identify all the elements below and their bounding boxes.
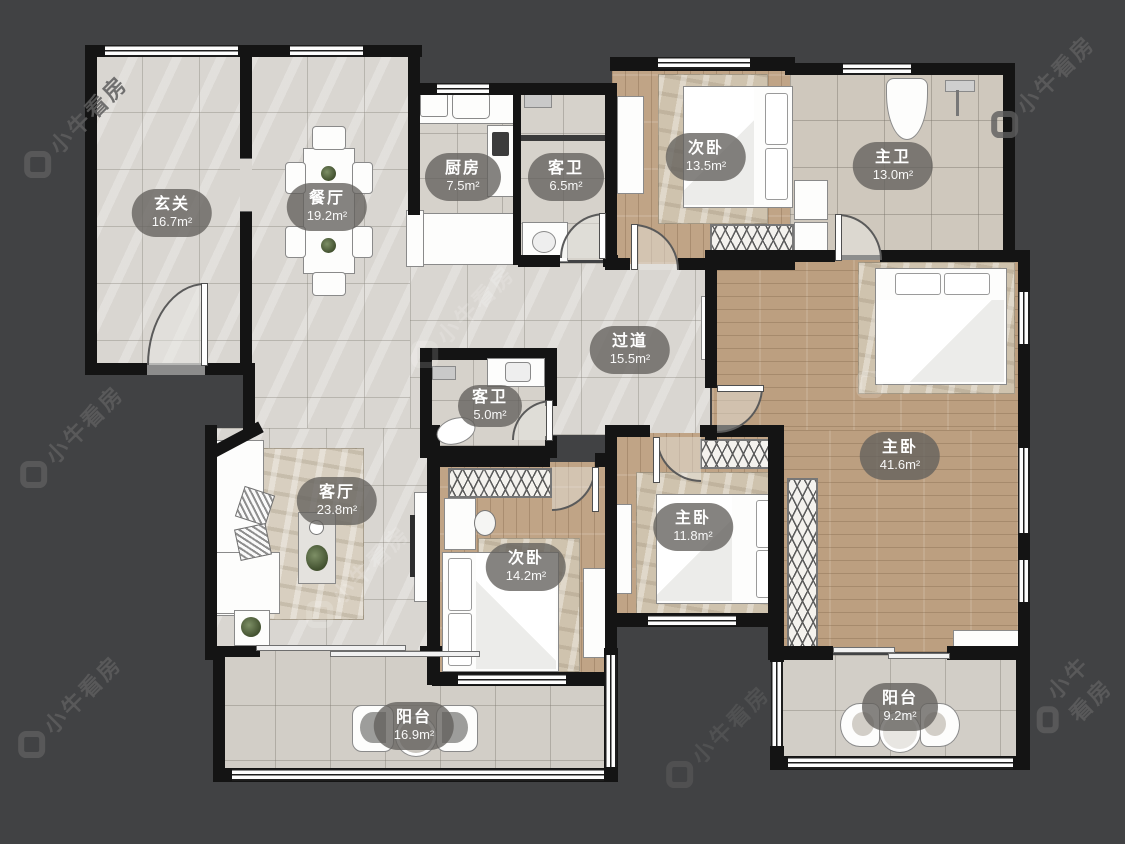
bedroom-upper-window-seat bbox=[617, 96, 644, 194]
watermark: 小牛看房 bbox=[658, 677, 776, 795]
wall bbox=[240, 210, 252, 375]
window bbox=[437, 83, 489, 95]
room-label-balcony-left: 阳台16.9m² bbox=[374, 702, 454, 750]
entry-dining-opening bbox=[240, 158, 252, 212]
window bbox=[458, 674, 566, 685]
wall bbox=[678, 258, 795, 270]
living-tv bbox=[410, 515, 415, 577]
entry-door-leaf bbox=[201, 283, 208, 366]
sliding-door-master-balcony-rail-1 bbox=[833, 647, 895, 653]
living-sofa-chaise bbox=[216, 552, 280, 614]
master-small-door-leaf bbox=[653, 437, 660, 483]
window bbox=[788, 757, 1013, 769]
window bbox=[1018, 292, 1030, 344]
wall bbox=[513, 83, 521, 265]
master-small-wardrobe bbox=[700, 439, 776, 469]
wall bbox=[1016, 646, 1030, 770]
master-bath-shower bbox=[945, 80, 975, 92]
wall bbox=[408, 45, 420, 215]
bedroom-lower-door-leaf bbox=[592, 467, 599, 512]
bath-upper-door-leaf bbox=[599, 213, 606, 259]
kitchen-sink-1 bbox=[420, 93, 448, 117]
room-label-bath-master: 主卫13.0m² bbox=[853, 142, 933, 190]
kitchen-counter-left bbox=[406, 210, 424, 267]
room-label-master-large: 主卧41.6m² bbox=[860, 432, 940, 480]
master-large-pillow-1 bbox=[895, 273, 941, 295]
living-cushion-2 bbox=[234, 523, 272, 561]
bath-lower-shower-fixture bbox=[432, 366, 456, 380]
wall bbox=[240, 45, 252, 158]
wall bbox=[85, 45, 97, 375]
watermark-logo-icon bbox=[20, 461, 47, 488]
room-label-kitchen: 厨房7.5m² bbox=[425, 153, 501, 201]
wall bbox=[420, 446, 557, 458]
wall bbox=[880, 250, 1015, 262]
bedroom-lower-chair bbox=[474, 510, 496, 536]
window bbox=[843, 63, 911, 75]
master-large-duvet bbox=[876, 300, 1004, 382]
bedroom-lower-pillow-2 bbox=[448, 613, 472, 666]
wall bbox=[205, 425, 217, 660]
sliding-door-master-balcony-rail-2 bbox=[888, 653, 950, 659]
wall bbox=[770, 650, 784, 662]
bedroom-lower-pillow-1 bbox=[448, 558, 472, 611]
window bbox=[605, 655, 617, 767]
dining-plant-1 bbox=[321, 166, 336, 181]
sliding-door-living-balcony-rail-2 bbox=[330, 651, 480, 657]
living-table-plant bbox=[306, 545, 328, 571]
watermark-logo-icon bbox=[24, 151, 51, 178]
living-corner-plant bbox=[241, 617, 261, 637]
master-large-door-leaf bbox=[717, 385, 764, 392]
room-label-bedroom-lower: 次卧14.2m² bbox=[486, 543, 566, 591]
room-label-dining: 餐厅19.2m² bbox=[287, 183, 367, 231]
kitchen-counter-bottom bbox=[412, 213, 516, 265]
bath-upper-divider bbox=[521, 135, 607, 141]
window bbox=[771, 662, 783, 746]
dining-plant-2 bbox=[321, 238, 336, 253]
bath-lower-door-leaf bbox=[546, 400, 553, 441]
window bbox=[1018, 448, 1030, 533]
wall bbox=[705, 258, 717, 388]
window bbox=[1018, 560, 1030, 602]
wall bbox=[705, 428, 717, 440]
floor-plan-canvas: 玄关16.7m² 餐厅19.2m² 厨房7.5m² 客卫6.5m² 次卧13.5… bbox=[0, 0, 1125, 844]
kitchen-stove bbox=[492, 132, 509, 156]
room-label-bath-guest-lower: 客卫5.0m² bbox=[458, 385, 522, 427]
watermark-logo-icon bbox=[1036, 706, 1058, 733]
room-label-bath-guest-upper: 客卫6.5m² bbox=[528, 153, 604, 201]
bath-lower-sink-bowl bbox=[505, 362, 531, 382]
room-label-hallway: 过道15.5m² bbox=[590, 326, 670, 374]
window bbox=[105, 45, 238, 57]
wall bbox=[545, 348, 557, 406]
master-bath-sink-1 bbox=[794, 180, 828, 220]
wall bbox=[420, 348, 432, 458]
room-label-living: 客厅23.8m² bbox=[297, 477, 377, 525]
wall bbox=[85, 363, 147, 375]
wall bbox=[605, 425, 617, 675]
watermark-logo-icon bbox=[18, 731, 45, 758]
watermark: 小牛看房 bbox=[1017, 634, 1125, 750]
bath-upper-sink-bowl bbox=[532, 231, 556, 253]
room-label-balcony-right: 阳台9.2m² bbox=[862, 683, 938, 731]
master-bath-door-leaf bbox=[835, 214, 842, 261]
bedroom-upper-door-leaf bbox=[631, 224, 638, 270]
master-large-wardrobe bbox=[787, 478, 818, 650]
room-label-entry: 玄关16.7m² bbox=[132, 189, 212, 237]
dining-chair-top bbox=[312, 126, 346, 150]
kitchen-sink-2 bbox=[452, 92, 490, 119]
wall bbox=[605, 425, 650, 437]
bedroom-upper-pillow-1 bbox=[765, 93, 788, 145]
bedroom-lower-wardrobe bbox=[448, 468, 552, 498]
bedroom-upper-pillow-2 bbox=[765, 148, 788, 200]
watermark-logo-icon bbox=[666, 761, 693, 788]
wall bbox=[213, 650, 225, 780]
window bbox=[648, 615, 736, 626]
room-label-master-small: 主卧11.8m² bbox=[653, 503, 733, 551]
wall bbox=[518, 255, 560, 267]
master-large-pillow-2 bbox=[944, 273, 990, 295]
watermark: 小牛看房 bbox=[10, 647, 128, 765]
room-label-bedroom-upper: 次卧13.5m² bbox=[666, 133, 746, 181]
window bbox=[290, 45, 363, 57]
wall bbox=[1003, 63, 1015, 262]
dining-chair-left-2 bbox=[285, 226, 306, 258]
dining-chair-right-2 bbox=[352, 226, 373, 258]
master-bath-shower-hose bbox=[956, 90, 959, 116]
window bbox=[232, 769, 604, 781]
wall bbox=[243, 363, 255, 433]
wall bbox=[605, 83, 617, 270]
dining-chair-bottom bbox=[312, 272, 346, 296]
bedroom-lower-desk bbox=[444, 498, 476, 550]
window bbox=[658, 57, 750, 69]
watermark: 小牛看房 bbox=[12, 377, 130, 495]
